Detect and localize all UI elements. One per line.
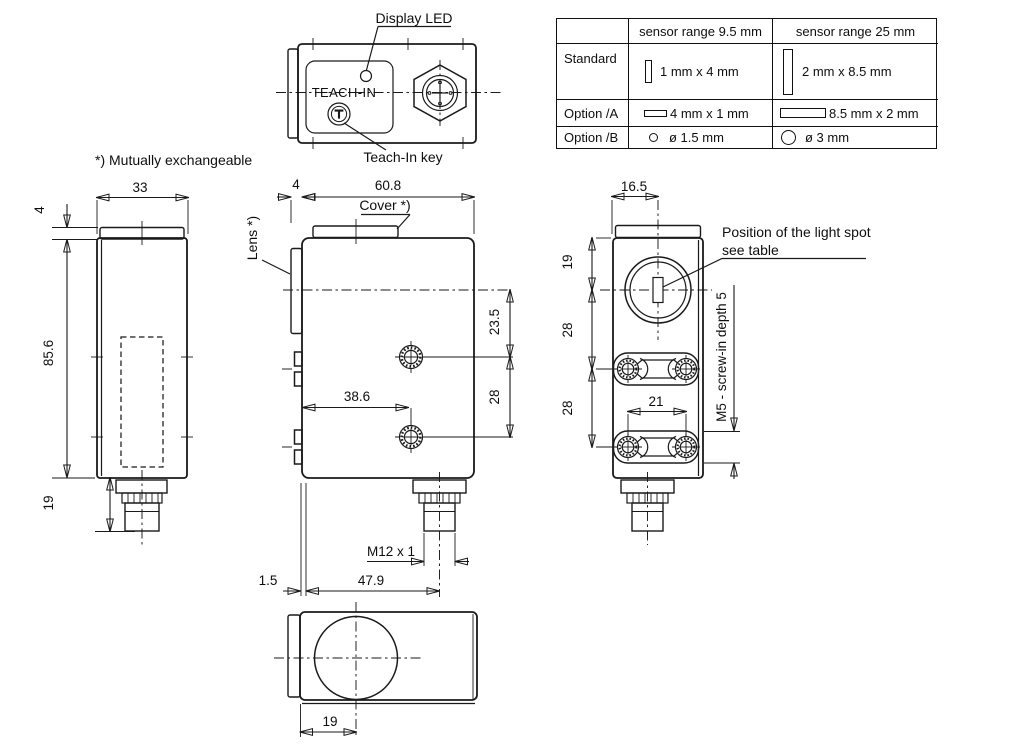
dim-4: 4: [32, 206, 47, 214]
display-led-indicator: [361, 71, 372, 82]
housing-outline: [97, 238, 187, 478]
dim-19: 19: [41, 495, 56, 510]
m12-connector: [413, 472, 466, 597]
light-spot-label-2: see table: [722, 242, 779, 258]
m5-screw-hole: [614, 355, 642, 383]
teach-in-key-leader: [344, 123, 386, 150]
aperture-slit-horizontal-large-icon: [780, 108, 826, 118]
dim-23-5: 23.5: [487, 309, 502, 335]
center-front-view: 4 60.8 Cover *) Lens *): [244, 177, 513, 597]
m5-screw-note: M5 - screw-in depth 5: [714, 292, 729, 422]
mounting-hole: [395, 341, 427, 373]
light-spot-leader: [663, 259, 866, 288]
dim-28: 28: [560, 322, 575, 337]
housing-outline: [302, 238, 474, 478]
table-row-label-option-a: Option /A: [557, 100, 629, 127]
cover-label: Cover *): [359, 197, 410, 213]
dim-38-6: 38.6: [344, 389, 370, 404]
hidden-cavity-outline: [121, 337, 163, 467]
centerline-ticks: [91, 357, 193, 437]
display-led-leader: [367, 27, 379, 71]
table-cell-standard-25: 2 mm x 8.5 mm: [773, 44, 938, 100]
cover-knurl-strip: [313, 226, 398, 238]
teach-in-key-label: Teach-In key: [363, 149, 442, 165]
light-spot: [653, 278, 663, 303]
lens-label: Lens *): [244, 216, 260, 260]
mounting-hole: [395, 421, 427, 453]
dim-1-5: 1.5: [259, 573, 278, 588]
dim-4-lens: 4: [292, 177, 300, 192]
table-cell-option-a-9-5: 4 mm x 1 mm: [629, 100, 773, 127]
teach-in-label: TEACH-IN: [312, 85, 377, 100]
dim-85-6: 85.6: [41, 340, 56, 366]
teach-in-key-button: [328, 103, 350, 125]
m5-screw-hole: [614, 433, 642, 461]
dim-28: 28: [487, 389, 502, 404]
dim-60-8: 60.8: [375, 178, 401, 193]
aperture-size-value: ø 3 mm: [805, 130, 849, 145]
dim-47-9: 47.9: [358, 573, 384, 588]
lens-leader: [262, 260, 290, 274]
aperture-slit-horizontal-small-icon: [644, 110, 667, 117]
table-cell-option-a-25: 8.5 mm x 2 mm: [773, 100, 938, 127]
light-spot-label-1: Position of the light spot: [722, 224, 871, 240]
lens-knurl-strip: [288, 49, 298, 138]
aperture-slit-vertical-small-icon: [645, 60, 652, 83]
table-cell-standard-9-5: 1 mm x 4 mm: [629, 44, 773, 100]
thread-label: M12 x 1: [367, 544, 415, 559]
lens-knurl-strip: [291, 249, 302, 334]
dim-16-5: 16.5: [621, 179, 647, 194]
lens-knurl-strip: [288, 615, 300, 697]
aperture-size-value: 2 mm x 8.5 mm: [802, 64, 892, 79]
dim-28: 28: [560, 400, 575, 415]
aperture-hole-small-icon: [649, 133, 658, 142]
table-header-range-25: sensor range 25 mm: [773, 19, 938, 44]
spec-table: sensor range 9.5 mm sensor range 25 mm S…: [556, 18, 937, 149]
table-header-range-9-5: sensor range 9.5 mm: [629, 19, 773, 44]
dim-19: 19: [322, 714, 337, 729]
m12-connector: [116, 470, 167, 545]
table-corner-cell: [557, 19, 629, 44]
dim-21: 21: [648, 394, 663, 409]
technical-drawing-page: Display LED TEACH-IN: [0, 0, 1024, 751]
right-lens-view: 16.5 Position of the light spot see tabl…: [560, 179, 871, 545]
dim-33: 33: [132, 180, 147, 195]
dim-19: 19: [560, 254, 575, 269]
m12-connector: [621, 472, 674, 545]
table-row-label-standard: Standard: [557, 44, 629, 100]
aperture-slit-vertical-large-icon: [783, 49, 793, 95]
table-cell-option-b-25: ø 3 mm: [773, 127, 938, 148]
top-view: Display LED TEACH-IN: [276, 10, 502, 165]
table-cell-option-b-9-5: ø 1.5 mm: [629, 127, 773, 148]
aperture-size-value: 8.5 mm x 2 mm: [829, 106, 919, 121]
side-tab: [282, 352, 302, 386]
mutually-exchangeable-note: *) Mutually exchangeable: [95, 152, 252, 168]
table-row-label-option-b: Option /B: [557, 127, 629, 148]
left-side-view: 33 4 85.6 19: [32, 180, 193, 545]
side-tab: [282, 430, 302, 464]
aperture-size-value: 4 mm x 1 mm: [670, 106, 749, 121]
aperture-size-value: ø 1.5 mm: [669, 130, 724, 145]
aperture-size-value: 1 mm x 4 mm: [660, 64, 739, 79]
display-led-label: Display LED: [375, 10, 452, 26]
bottom-view: 19: [274, 602, 477, 737]
aperture-hole-large-icon: [781, 130, 796, 145]
m12-connector-top: [414, 60, 466, 126]
